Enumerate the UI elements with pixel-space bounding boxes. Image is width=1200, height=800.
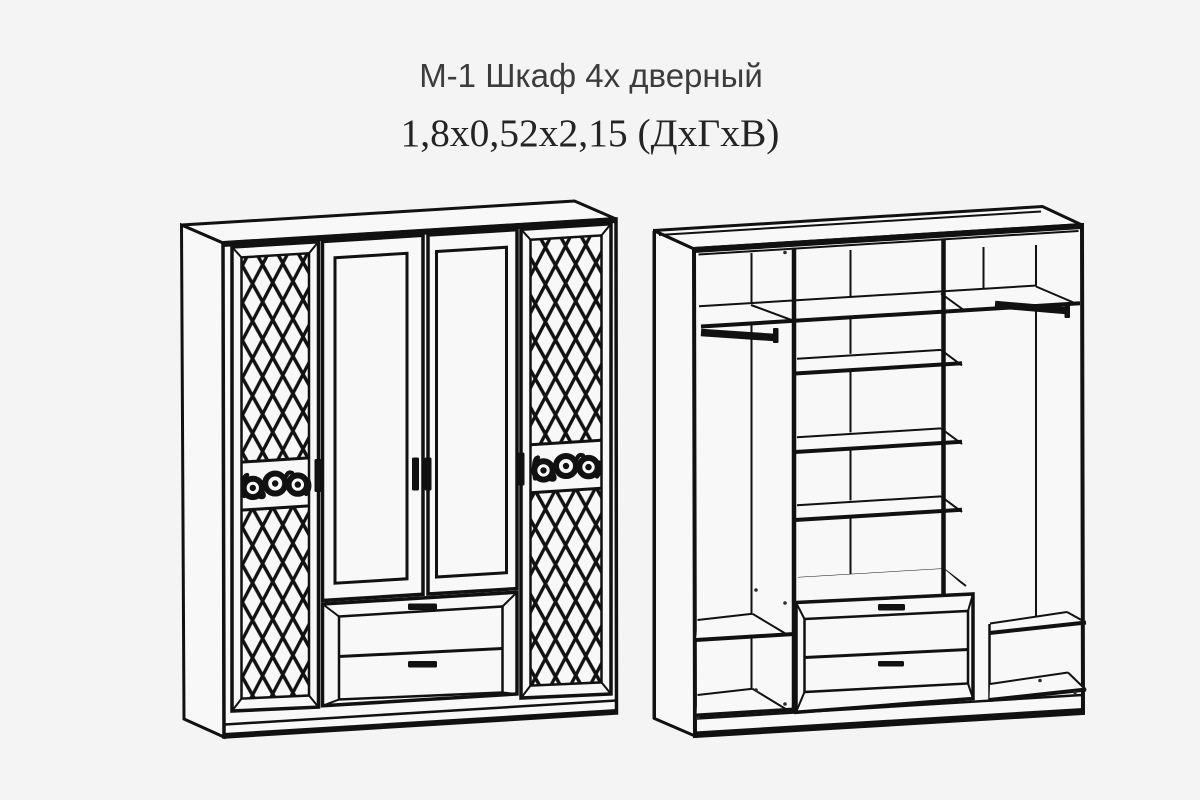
svg-text:М-1 Шкаф 4х дверный: М-1 Шкаф 4х дверный	[419, 57, 763, 94]
svg-text:1,8х0,52х2,15 (ДхГхВ): 1,8х0,52х2,15 (ДхГхВ)	[401, 111, 780, 155]
